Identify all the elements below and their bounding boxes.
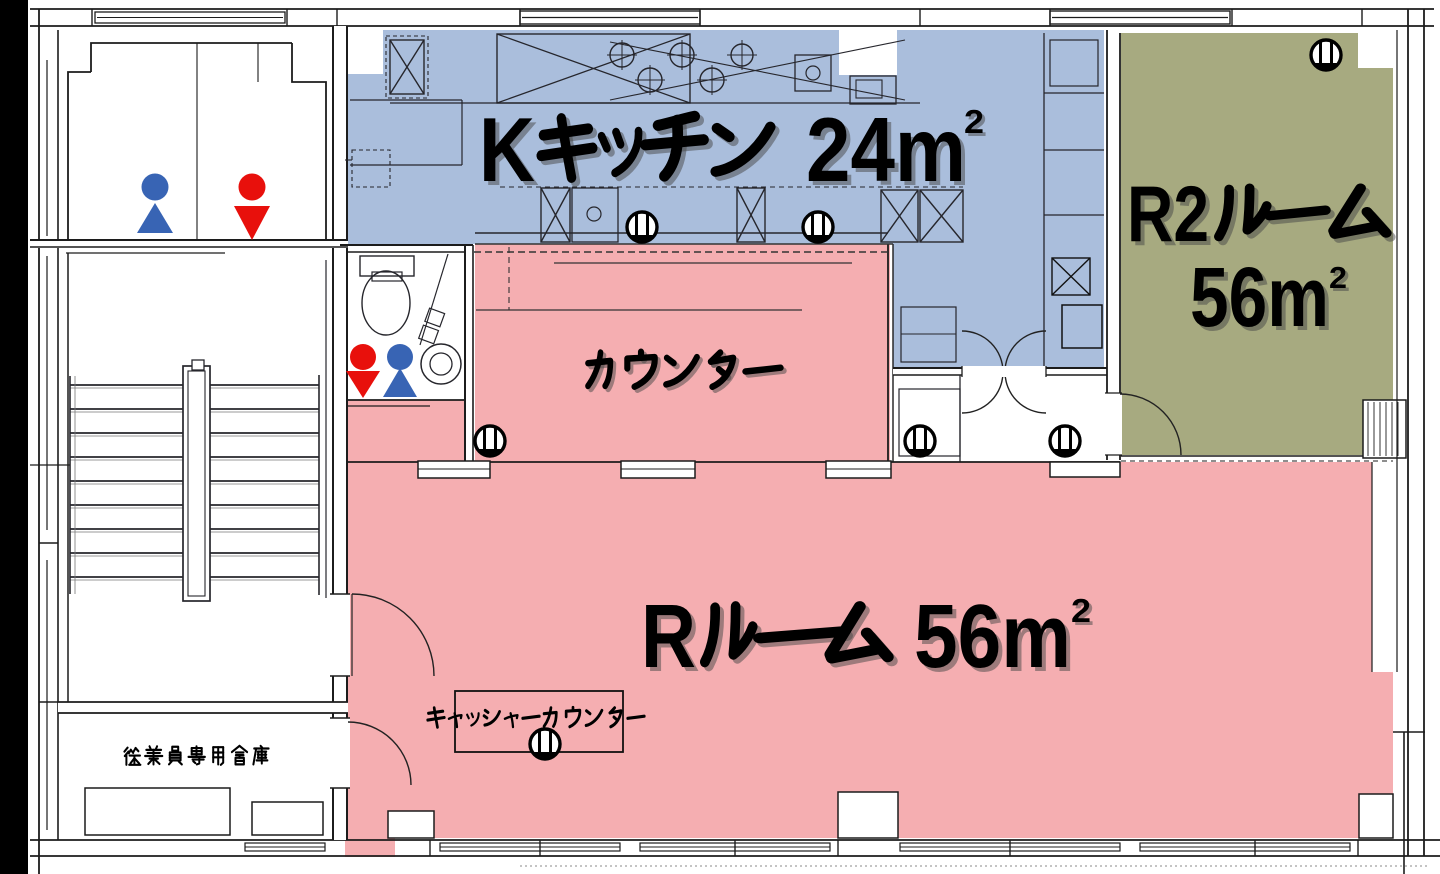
svg-text:24m: 24m xyxy=(806,100,966,201)
svg-text:R2: R2 xyxy=(1127,169,1209,258)
svg-text:56m: 56m xyxy=(914,587,1071,687)
svg-text:K: K xyxy=(479,100,535,201)
svg-text:56m: 56m xyxy=(1190,250,1329,344)
svg-text:R: R xyxy=(641,587,696,687)
svg-text:2: 2 xyxy=(1329,260,1347,295)
svg-text:2: 2 xyxy=(1071,592,1091,629)
svg-text:2: 2 xyxy=(964,103,984,140)
